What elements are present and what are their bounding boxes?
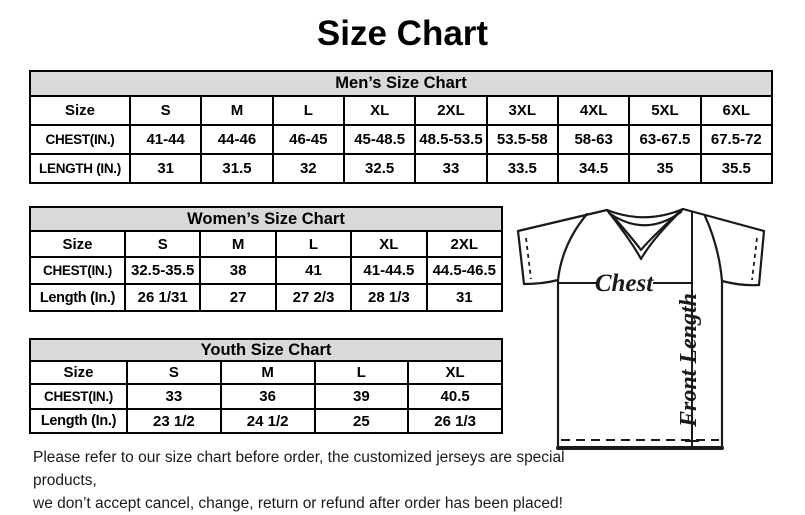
chest-value: 33	[127, 384, 221, 409]
chest-value: 44-46	[201, 125, 272, 154]
front-length-label: Front Length	[676, 293, 702, 428]
chest-value: 45-48.5	[344, 125, 415, 154]
size-col-header: S	[125, 231, 200, 257]
table-row: Size S M L XL 2XL	[30, 231, 502, 257]
tshirt-diagram: Chest Front Length	[505, 196, 805, 460]
length-value: 31	[130, 154, 201, 183]
length-value: 31	[427, 284, 502, 311]
womens-size-table: Women’s Size Chart Size S M L XL 2XL CHE…	[29, 206, 503, 312]
size-col-header: M	[200, 231, 275, 257]
chest-value: 32.5-35.5	[125, 257, 200, 284]
row-label: LENGTH (IN.)	[30, 154, 130, 183]
length-value: 33.5	[487, 154, 558, 183]
size-col-header: S	[130, 96, 201, 125]
womens-table-title: Women’s Size Chart	[30, 207, 502, 231]
chest-value: 41	[276, 257, 351, 284]
chest-value: 53.5-58	[487, 125, 558, 154]
youth-size-table: Youth Size Chart Size S M L XL CHEST(IN.…	[29, 338, 503, 434]
chest-value: 39	[315, 384, 409, 409]
chest-value: 38	[200, 257, 275, 284]
size-col-header: 2XL	[415, 96, 486, 125]
chest-value: 67.5-72	[701, 125, 772, 154]
table-row: CHEST(IN.) 32.5-35.5 38 41 41-44.5 44.5-…	[30, 257, 502, 284]
size-col-header: 6XL	[701, 96, 772, 125]
row-label: Length (In.)	[30, 284, 125, 311]
table-row: LENGTH (IN.) 31 31.5 32 32.5 33 33.5 34.…	[30, 154, 772, 183]
mens-size-table: Men’s Size Chart Size S M L XL 2XL 3XL 4…	[29, 70, 773, 184]
youth-table-title: Youth Size Chart	[30, 339, 502, 361]
table-row: Size S M L XL	[30, 361, 502, 384]
table-row: Women’s Size Chart	[30, 207, 502, 231]
row-label: Size	[30, 361, 127, 384]
table-row: Youth Size Chart	[30, 339, 502, 361]
size-col-header: 3XL	[487, 96, 558, 125]
chest-value: 46-45	[273, 125, 344, 154]
length-value: 35	[629, 154, 700, 183]
length-value: 27 2/3	[276, 284, 351, 311]
chest-value: 58-63	[558, 125, 629, 154]
length-value: 34.5	[558, 154, 629, 183]
size-col-header: L	[276, 231, 351, 257]
table-row: Size S M L XL 2XL 3XL 4XL 5XL 6XL	[30, 96, 772, 125]
size-col-header: 2XL	[427, 231, 502, 257]
size-col-header: M	[221, 361, 315, 384]
length-value: 31.5	[201, 154, 272, 183]
disclaimer-line-1: Please refer to our size chart before or…	[33, 446, 573, 492]
row-label: Length (In.)	[30, 409, 127, 433]
size-col-header: XL	[408, 361, 502, 384]
size-col-header: S	[127, 361, 221, 384]
chest-value: 41-44.5	[351, 257, 426, 284]
tshirt-outline	[518, 209, 764, 448]
size-col-header: 4XL	[558, 96, 629, 125]
length-value: 35.5	[701, 154, 772, 183]
chest-label: Chest	[595, 270, 654, 297]
length-value: 26 1/3	[408, 409, 502, 433]
length-value: 27	[200, 284, 275, 311]
length-value: 33	[415, 154, 486, 183]
length-value: 32.5	[344, 154, 415, 183]
length-value: 26 1/31	[125, 284, 200, 311]
chest-value: 36	[221, 384, 315, 409]
table-row: Men’s Size Chart	[30, 71, 772, 96]
table-row: Length (In.) 26 1/31 27 27 2/3 28 1/3 31	[30, 284, 502, 311]
row-label: CHEST(IN.)	[30, 257, 125, 284]
left-cuff-dashed-line	[526, 238, 531, 279]
row-label: Size	[30, 96, 130, 125]
chest-value: 41-44	[130, 125, 201, 154]
chest-value: 40.5	[408, 384, 502, 409]
chest-value: 44.5-46.5	[427, 257, 502, 284]
size-col-header: XL	[351, 231, 426, 257]
row-label: CHEST(IN.)	[30, 384, 127, 409]
size-col-header: XL	[344, 96, 415, 125]
table-row: Length (In.) 23 1/2 24 1/2 25 26 1/3	[30, 409, 502, 433]
size-col-header: M	[201, 96, 272, 125]
table-row: CHEST(IN.) 41-44 44-46 46-45 45-48.5 48.…	[30, 125, 772, 154]
length-value: 25	[315, 409, 409, 433]
size-col-header: L	[273, 96, 344, 125]
length-value: 23 1/2	[127, 409, 221, 433]
mens-table-title: Men’s Size Chart	[30, 71, 772, 96]
chest-value: 48.5-53.5	[415, 125, 486, 154]
row-label: CHEST(IN.)	[30, 125, 130, 154]
length-value: 28 1/3	[351, 284, 426, 311]
length-value: 32	[273, 154, 344, 183]
size-col-header: L	[315, 361, 409, 384]
chest-value: 63-67.5	[629, 125, 700, 154]
page-title: Size Chart	[0, 14, 805, 54]
size-col-header: 5XL	[629, 96, 700, 125]
row-label: Size	[30, 231, 125, 257]
length-value: 24 1/2	[221, 409, 315, 433]
right-cuff-dashed-line	[752, 238, 757, 280]
table-row: CHEST(IN.) 33 36 39 40.5	[30, 384, 502, 409]
disclaimer-text: Please refer to our size chart before or…	[33, 446, 573, 515]
